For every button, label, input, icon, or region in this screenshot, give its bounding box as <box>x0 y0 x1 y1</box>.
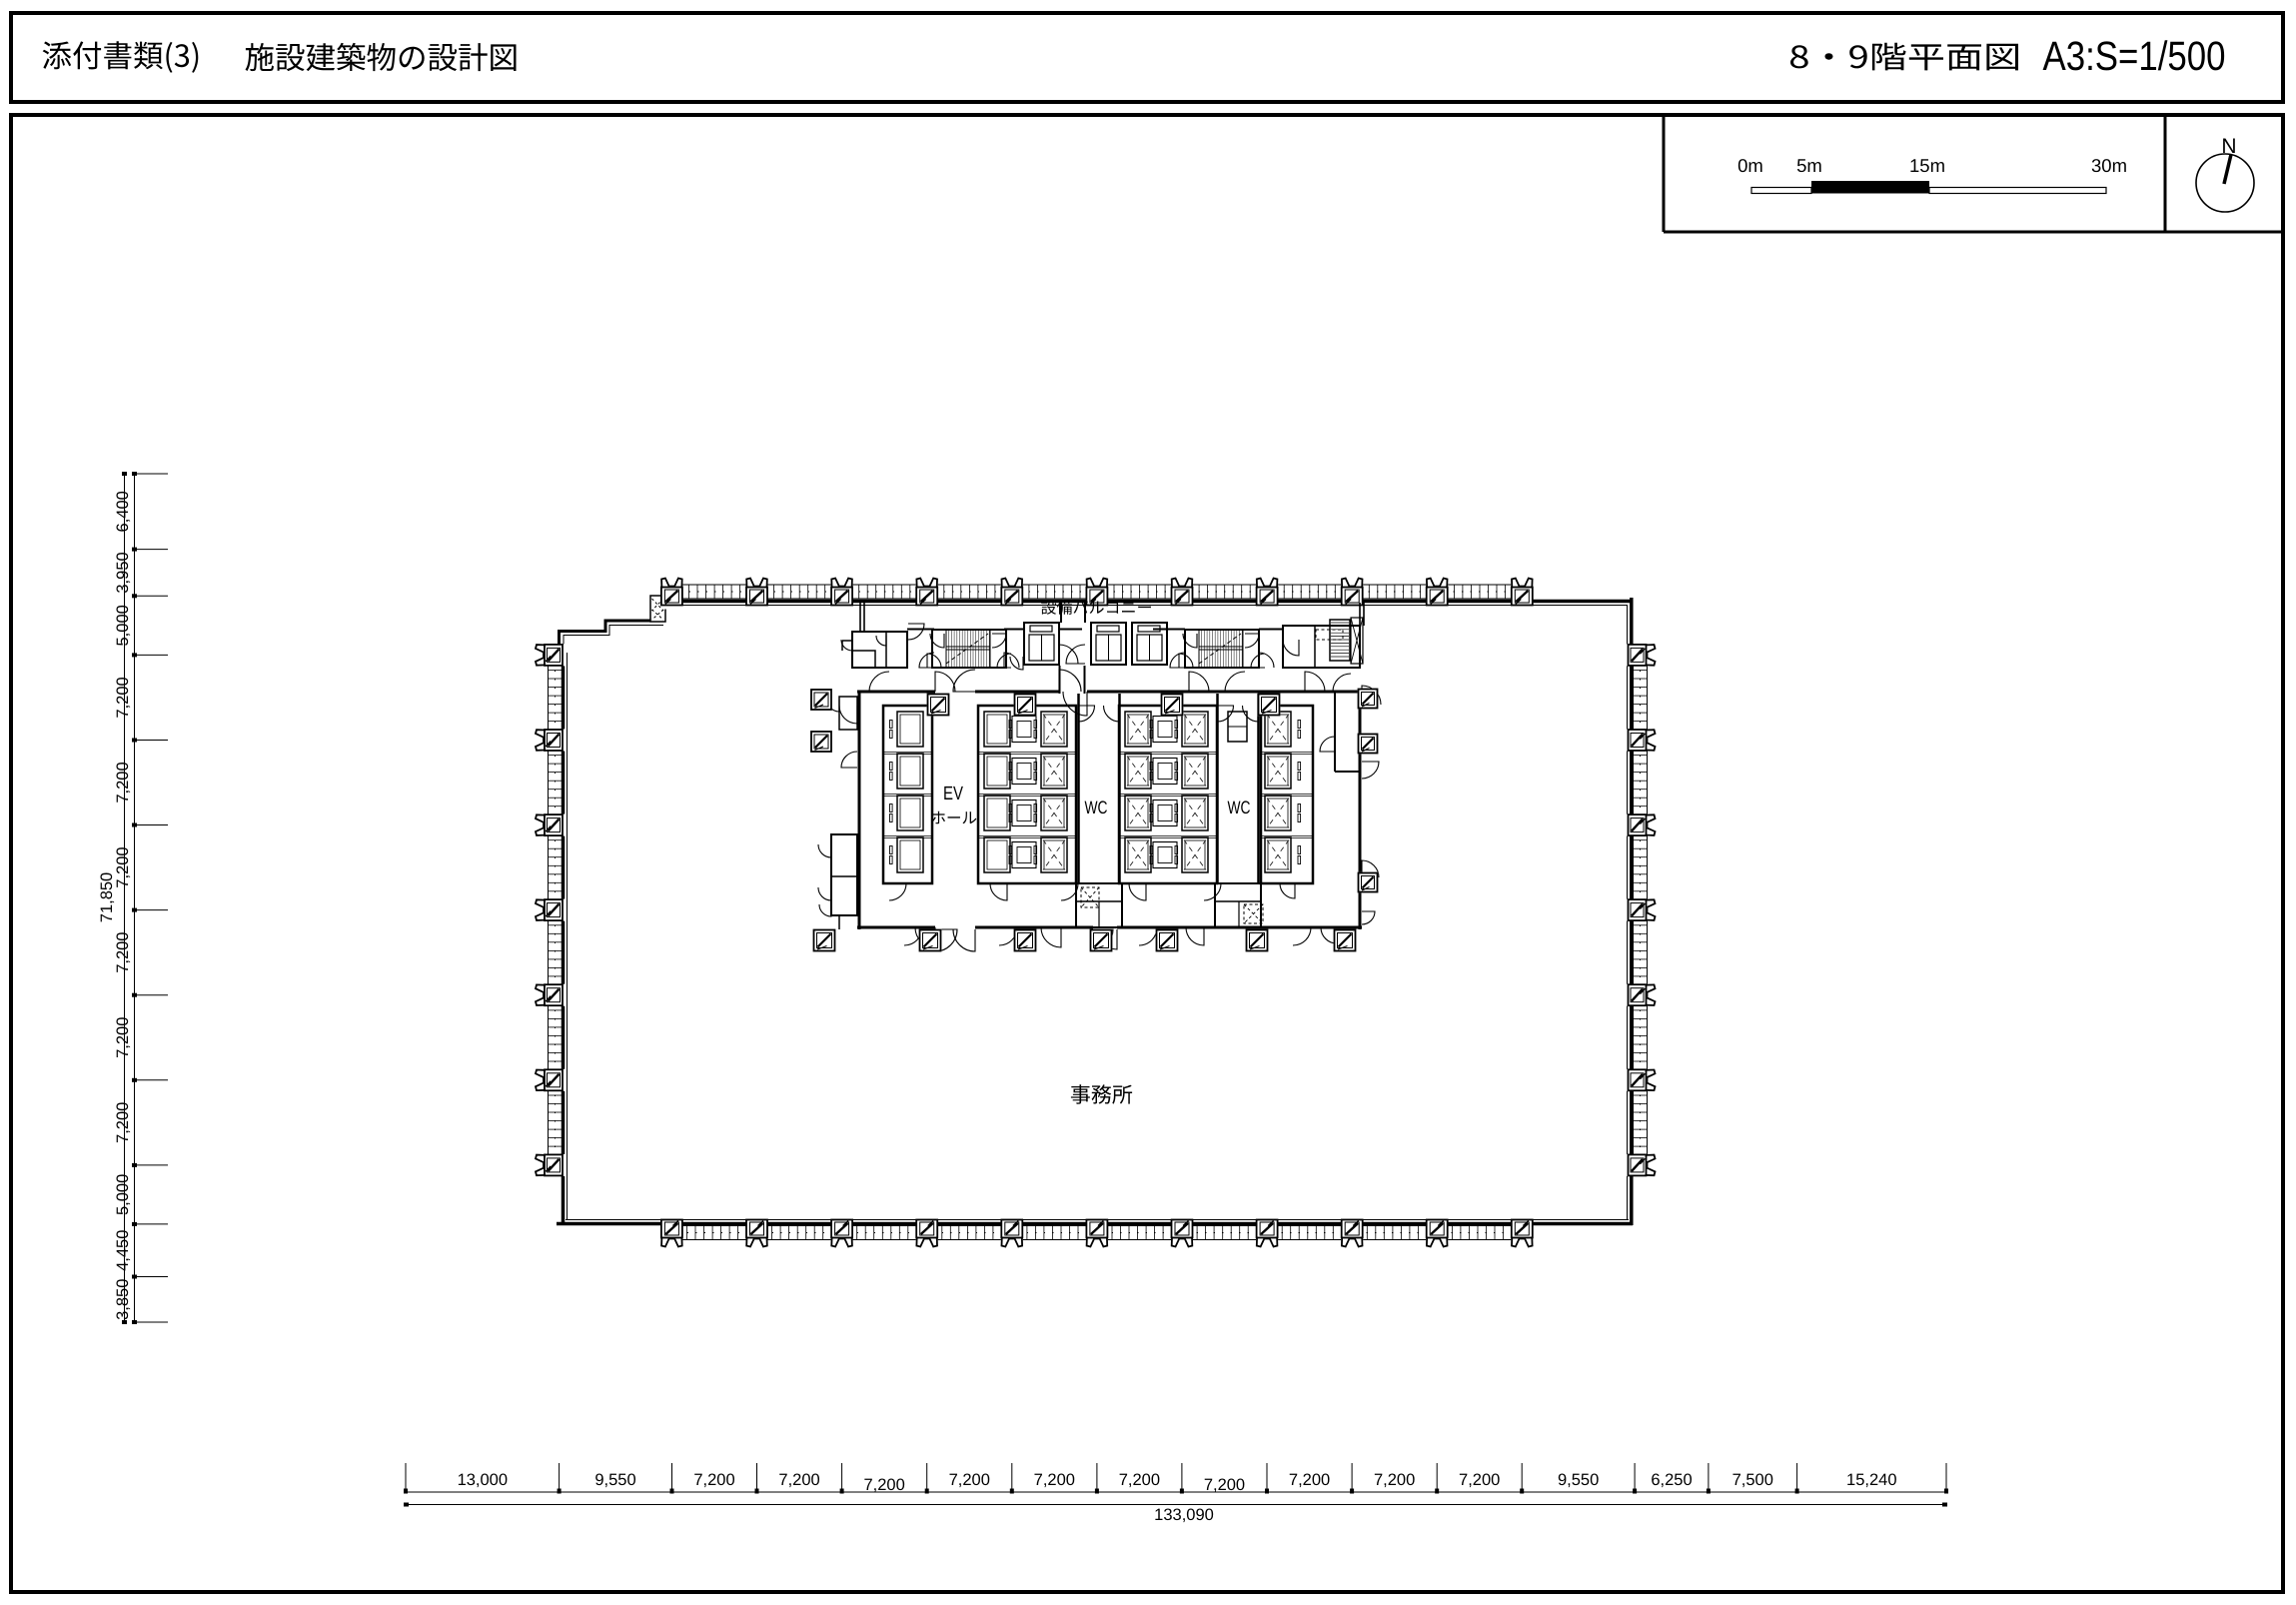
svg-text:0m: 0m <box>1737 155 1763 176</box>
svg-text:9,550: 9,550 <box>594 1471 635 1489</box>
svg-text:EV: EV <box>943 784 963 804</box>
svg-text:7,500: 7,500 <box>1732 1471 1773 1489</box>
svg-text:3,950: 3,950 <box>114 552 132 593</box>
svg-text:71,850: 71,850 <box>98 872 116 922</box>
svg-text:7,200: 7,200 <box>1289 1471 1330 1489</box>
svg-text:7,200: 7,200 <box>114 932 132 973</box>
svg-text:9,550: 9,550 <box>1558 1471 1599 1489</box>
svg-text:6,250: 6,250 <box>1651 1471 1692 1489</box>
svg-text:7,200: 7,200 <box>1374 1471 1415 1489</box>
svg-text:7,200: 7,200 <box>114 1102 132 1143</box>
svg-text:WC: WC <box>1085 798 1108 817</box>
svg-text:7,200: 7,200 <box>1034 1471 1075 1489</box>
svg-text:7,200: 7,200 <box>114 677 132 718</box>
svg-text:5m: 5m <box>1796 155 1822 176</box>
svg-text:7,200: 7,200 <box>114 762 132 802</box>
svg-text:7,200: 7,200 <box>1204 1476 1245 1494</box>
svg-text:3,850: 3,850 <box>114 1279 132 1320</box>
svg-text:15,240: 15,240 <box>1846 1471 1896 1489</box>
svg-text:7,200: 7,200 <box>864 1476 905 1494</box>
svg-text:6,400: 6,400 <box>114 491 132 532</box>
svg-text:7,200: 7,200 <box>1459 1471 1500 1489</box>
svg-text:7,200: 7,200 <box>693 1471 734 1489</box>
svg-text:7,200: 7,200 <box>949 1471 990 1489</box>
svg-text:5,000: 5,000 <box>114 1174 132 1215</box>
svg-text:5,000: 5,000 <box>114 605 132 646</box>
svg-text:7,200: 7,200 <box>1119 1471 1160 1489</box>
svg-text:7,200: 7,200 <box>114 1017 132 1058</box>
svg-text:7,200: 7,200 <box>114 846 132 887</box>
svg-text:15m: 15m <box>1909 155 1945 176</box>
svg-text:A3:S=1/500: A3:S=1/500 <box>2043 33 2226 79</box>
svg-text:7,200: 7,200 <box>778 1471 819 1489</box>
svg-text:4,450: 4,450 <box>114 1230 132 1271</box>
svg-text:133,090: 133,090 <box>1154 1506 1214 1524</box>
svg-text:13,000: 13,000 <box>458 1471 508 1489</box>
svg-text:WC: WC <box>1228 798 1251 817</box>
svg-text:30m: 30m <box>2091 155 2127 176</box>
